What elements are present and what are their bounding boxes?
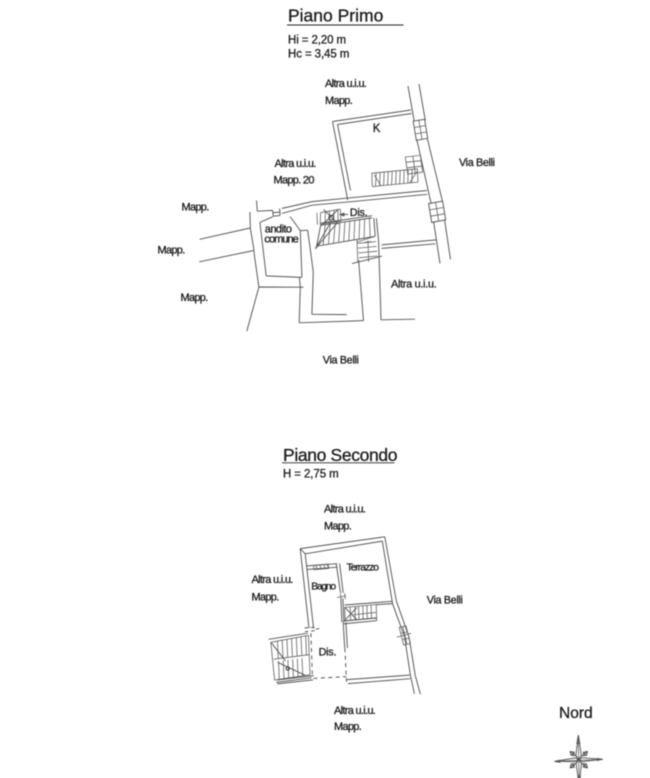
svg-text:Hc = 3,45 m: Hc = 3,45 m <box>288 49 349 61</box>
svg-text:Nord: Nord <box>559 705 593 722</box>
svg-text:Piano Primo: Piano Primo <box>288 6 383 26</box>
svg-text:Mapp.: Mapp. <box>158 245 186 257</box>
svg-text:Altra u.i.u.: Altra u.i.u. <box>252 574 294 586</box>
svg-text:Altra u.i.u.: Altra u.i.u. <box>325 78 367 90</box>
svg-text:Mapp.: Mapp. <box>334 721 362 733</box>
svg-text:comune: comune <box>264 233 298 245</box>
svg-text:Hi = 2,20 m: Hi = 2,20 m <box>288 35 346 47</box>
svg-text:Terrazzo: Terrazzo <box>347 563 380 574</box>
svg-text:K: K <box>373 123 381 135</box>
svg-text:Mapp.: Mapp. <box>324 520 352 532</box>
svg-text:Mapp. 20: Mapp. 20 <box>274 175 315 187</box>
svg-text:Altra u.i.u.: Altra u.i.u. <box>324 503 366 515</box>
svg-text:Via Belli: Via Belli <box>323 354 359 366</box>
svg-text:Via Belli: Via Belli <box>459 157 495 169</box>
svg-text:Mapp.: Mapp. <box>181 292 209 304</box>
svg-text:Mapp.: Mapp. <box>325 95 353 107</box>
svg-text:Altra u.i.u.: Altra u.i.u. <box>334 705 376 717</box>
svg-text:Mapp.: Mapp. <box>252 592 280 604</box>
svg-text:Dis.: Dis. <box>319 647 337 659</box>
svg-text:Altra u.i.u.: Altra u.i.u. <box>275 158 317 170</box>
svg-text:H = 2,75 m: H = 2,75 m <box>283 469 339 481</box>
svg-text:Bagno: Bagno <box>311 582 336 593</box>
svg-text:Altra u.i.u.: Altra u.i.u. <box>391 279 437 291</box>
svg-text:Piano Secondo: Piano Secondo <box>283 445 397 465</box>
svg-text:Via Belli: Via Belli <box>427 594 463 606</box>
svg-text:Mapp.: Mapp. <box>182 202 210 214</box>
